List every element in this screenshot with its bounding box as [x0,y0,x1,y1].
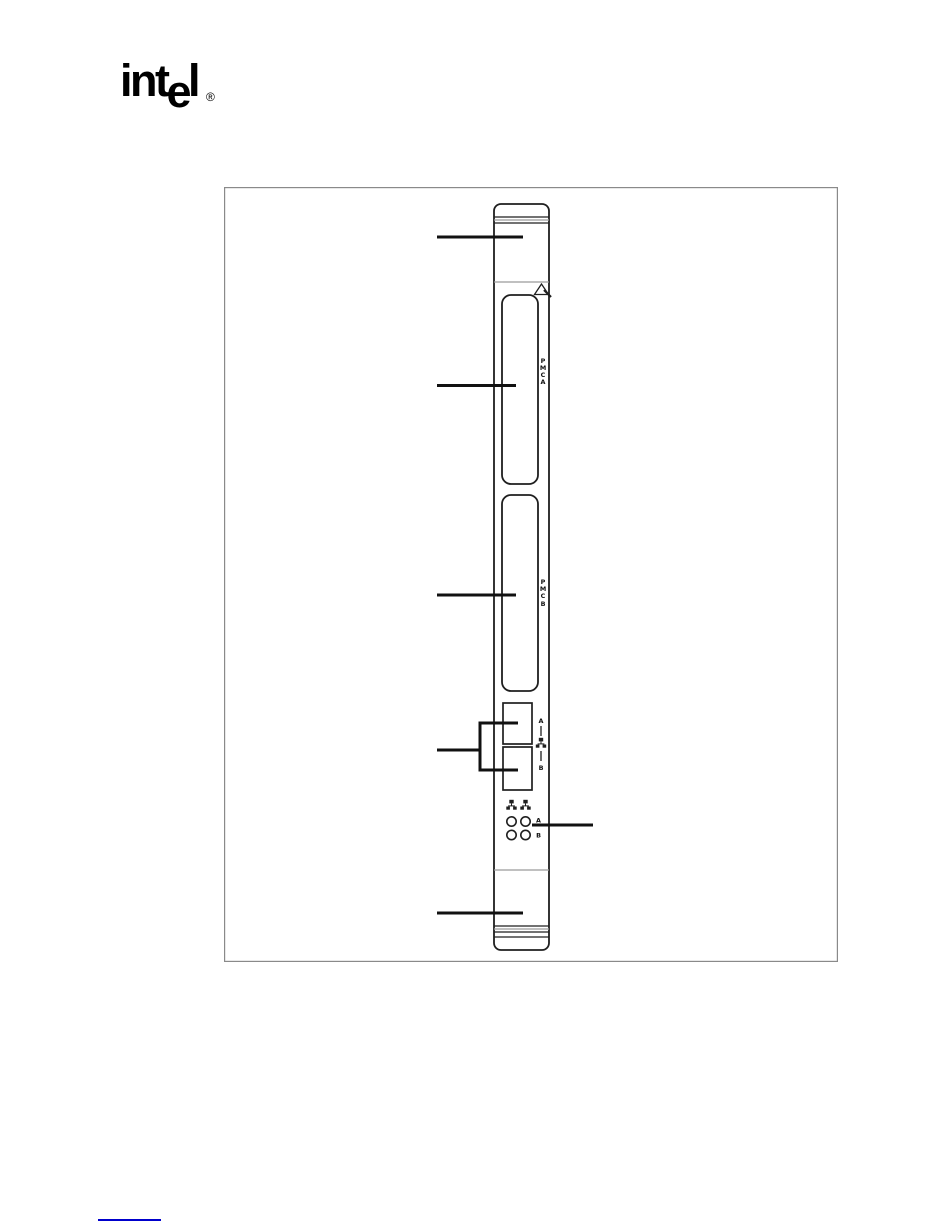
logo-text-l: l [188,55,198,106]
top-ejector-handle [494,217,549,282]
led-a-right [521,817,530,826]
led-b-right [521,830,530,839]
svg-text:A: A [536,817,541,825]
svg-text:C: C [541,592,546,600]
front-panel-figure: P M C A P M C B A B [224,187,838,962]
pmc-a-label: P M C A [540,357,546,386]
network-icon [520,800,530,810]
logo-dropped-e: e [166,69,189,114]
network-icon [536,738,546,748]
led-b-left [507,830,516,839]
registered-trademark-icon: ® [206,91,215,103]
footer-link-underline[interactable] [98,1219,161,1221]
document-page: intel® [0,0,950,1229]
svg-text:B: B [539,764,544,772]
led-cluster: A B [506,800,541,840]
pmc-b-label: P M C B [540,578,546,608]
svg-text:B: B [541,600,546,608]
bottom-ejector-handle [494,870,549,937]
network-icon [506,800,516,810]
logo-text-int: int [120,55,167,106]
pmc-a-slot [502,295,538,484]
ethernet-port-label-column: A B [536,717,546,772]
svg-text:A: A [541,378,546,386]
figure-border [225,188,838,962]
faceplate: P M C A P M C B A B [437,204,593,950]
svg-text:A: A [539,717,544,725]
pmc-b-slot [502,495,538,691]
led-a-left [507,817,516,826]
intel-logo: intel® [120,58,230,120]
svg-text:B: B [536,832,541,840]
